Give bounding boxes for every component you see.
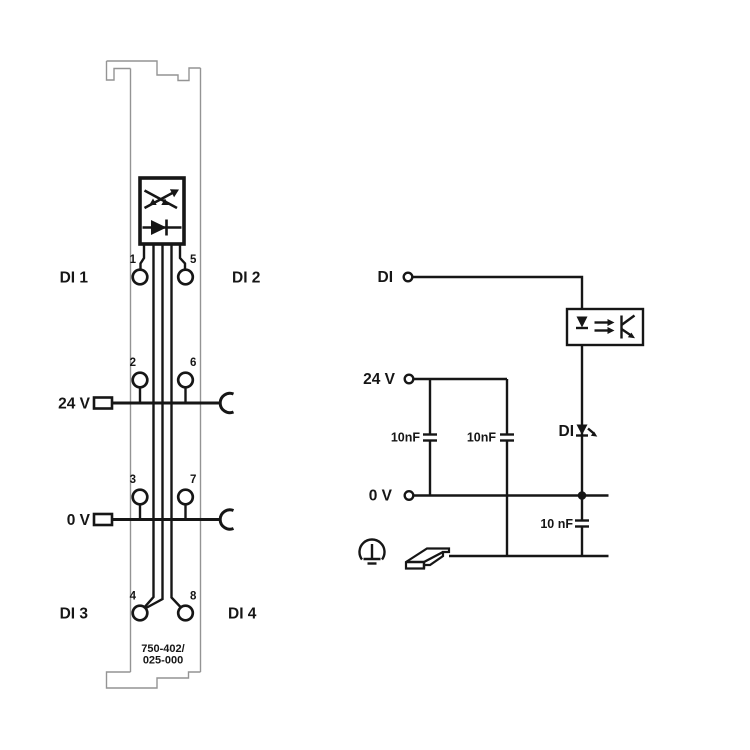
io-module-wiring-diagram: 1 5 2 6 3 7 4 8 DI 1 DI 2 24 V 0 V DI 3 … bbox=[0, 0, 750, 750]
bus-0v bbox=[94, 510, 234, 529]
label-di4: DI 4 bbox=[228, 606, 257, 623]
terminal-4-number: 4 bbox=[130, 591, 137, 603]
di-input-line: DI bbox=[378, 269, 583, 556]
label-cap2: 10nF bbox=[467, 431, 497, 445]
rail-24v: 24 V 10nF 10nF bbox=[363, 371, 514, 556]
label-schematic-di: DI bbox=[378, 269, 394, 286]
label-schematic-24v: 24 V bbox=[363, 371, 396, 388]
label-cap1: 10nF bbox=[391, 431, 421, 445]
label-schematic-0v: 0 V bbox=[369, 488, 393, 505]
label-cap3: 10 nF bbox=[540, 517, 573, 531]
terminal-8 bbox=[178, 606, 193, 621]
terminal-7 bbox=[178, 490, 193, 505]
power-plug-0v-icon bbox=[94, 514, 112, 525]
module-labels: DI 1 DI 2 24 V 0 V DI 3 DI 4 750-402/ 02… bbox=[58, 270, 260, 667]
capacitor-1: 10nF bbox=[391, 379, 437, 496]
terminal-4 bbox=[133, 606, 148, 621]
part-number-line2: 025-000 bbox=[143, 655, 183, 667]
label-di2: DI 2 bbox=[232, 270, 260, 287]
terminal-8-number: 8 bbox=[190, 591, 197, 603]
junction-dot bbox=[578, 491, 587, 500]
label-0v: 0 V bbox=[67, 512, 91, 529]
label-di3: DI 3 bbox=[60, 606, 89, 623]
24v-terminal-circle bbox=[405, 375, 414, 384]
input-circuit-schematic: DI 24 V bbox=[359, 269, 643, 569]
0v-terminal-circle bbox=[405, 491, 414, 500]
power-socket-0v-icon bbox=[220, 510, 233, 529]
terminal-2 bbox=[133, 373, 148, 388]
earth-symbol-icon bbox=[359, 540, 384, 564]
power-plug-24v-icon bbox=[94, 398, 112, 409]
power-socket-24v-icon bbox=[220, 393, 233, 412]
terminal-5-number: 5 bbox=[190, 254, 197, 266]
terminal-7-number: 7 bbox=[190, 474, 196, 486]
din-rail-icon bbox=[406, 549, 449, 569]
bus-24v bbox=[94, 393, 234, 412]
label-24v: 24 V bbox=[58, 396, 91, 413]
optocoupler-box bbox=[567, 309, 643, 345]
status-led: DI bbox=[559, 423, 598, 440]
terminal-6-number: 6 bbox=[190, 357, 196, 369]
terminal-3 bbox=[133, 490, 148, 505]
module-wires bbox=[141, 244, 186, 608]
terminal-3-number: 3 bbox=[130, 474, 136, 486]
earth-section bbox=[359, 540, 608, 569]
terminal-5 bbox=[178, 270, 193, 285]
terminal-6 bbox=[178, 373, 193, 388]
label-led-di: DI bbox=[559, 423, 575, 440]
terminal-1-number: 1 bbox=[130, 254, 137, 266]
module-contact-view: 1 5 2 6 3 7 4 8 DI 1 DI 2 24 V 0 V DI 3 … bbox=[58, 61, 260, 688]
part-number-line1: 750-402/ bbox=[141, 643, 184, 655]
di-terminal-circle bbox=[404, 273, 413, 282]
terminal-2-number: 2 bbox=[130, 357, 136, 369]
label-di1: DI 1 bbox=[60, 270, 89, 287]
capacitor-2: 10nF bbox=[467, 379, 514, 556]
led-indicator-box bbox=[140, 178, 184, 244]
rail-0v: 0 V bbox=[369, 488, 609, 505]
terminal-1 bbox=[133, 270, 148, 285]
